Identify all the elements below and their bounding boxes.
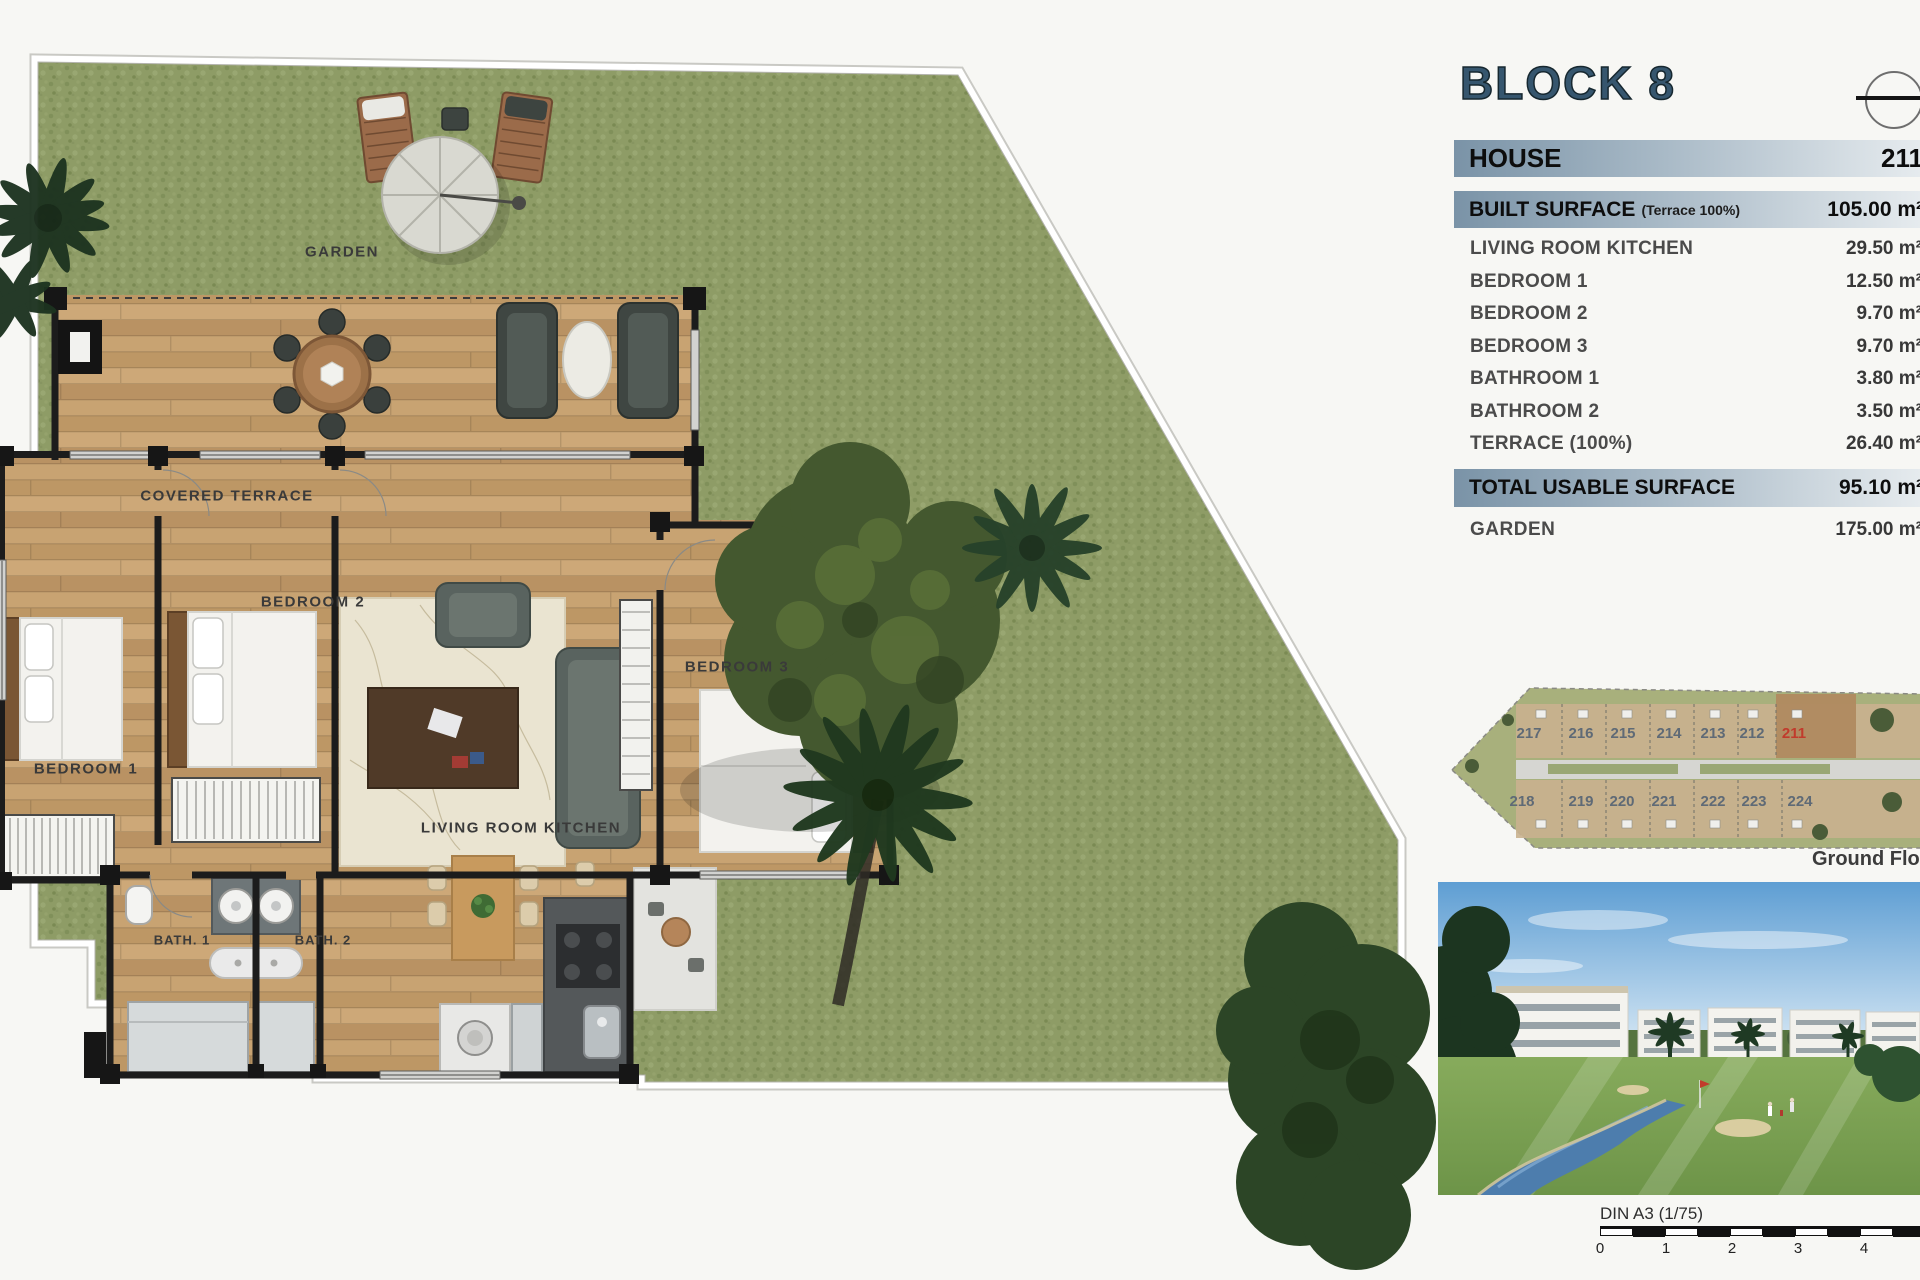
scale-tick: 3 — [1794, 1240, 1802, 1257]
ground-floor-caption: Ground Floor — [1812, 848, 1920, 871]
site-unit-215: 215 — [1610, 725, 1635, 742]
row-label: BEDROOM 3 — [1454, 336, 1588, 358]
scale-segment — [1633, 1229, 1665, 1237]
row-label: LIVING ROOM KITCHEN — [1454, 238, 1693, 260]
scale-tick: 1 — [1662, 1240, 1670, 1257]
built-surface-row: BUILT SURFACE (Terrace 100%) 105.00 m² — [1454, 191, 1920, 228]
compass-icon — [1865, 71, 1920, 129]
bedroom1-furniture — [0, 618, 122, 877]
table-row: LIVING ROOM KITCHEN 29.50 m² — [1454, 233, 1920, 266]
built-surface-value: 105.00 m² — [1827, 198, 1920, 222]
living-room-kitchen-label: LIVING ROOM KITCHEN — [421, 820, 621, 837]
table-row: BATHROOM 2 3.50 m² — [1454, 396, 1920, 429]
total-label: TOTAL USABLE SURFACE — [1454, 476, 1735, 500]
site-unit-221: 221 — [1651, 793, 1676, 810]
site-unit-223: 223 — [1741, 793, 1766, 810]
built-surface-note: (Terrace 100%) — [1641, 202, 1740, 218]
row-label: BEDROOM 2 — [1454, 303, 1588, 325]
site-unit-213: 213 — [1700, 725, 1725, 742]
garden-surface-row: GARDEN 175.00 m² — [1454, 513, 1920, 547]
scale-segment — [1795, 1229, 1828, 1236]
bedroom1-label: BEDROOM 1 — [34, 761, 138, 778]
site-unit-216: 216 — [1568, 725, 1593, 742]
scale-segment — [1893, 1229, 1920, 1237]
site-plan: 217 216 215 214 213 212 211 218 219 220 … — [1448, 680, 1920, 860]
table-row: BEDROOM 3 9.70 m² — [1454, 331, 1920, 364]
scale-tick: 0 — [1596, 1240, 1604, 1257]
entry-gate — [58, 320, 102, 374]
site-unit-218: 218 — [1509, 793, 1534, 810]
row-value: 12.50 m² — [1846, 271, 1920, 293]
site-unit-214: 214 — [1656, 725, 1682, 742]
row-label: BATHROOM 2 — [1454, 401, 1599, 423]
scale-segment — [1600, 1229, 1633, 1236]
bedroom2-furniture — [168, 612, 320, 842]
garden-surface-label: GARDEN — [1454, 519, 1555, 541]
scale-segment — [1763, 1229, 1795, 1237]
bedroom3-label: BEDROOM 3 — [685, 659, 789, 676]
surface-table: LIVING ROOM KITCHEN 29.50 m² BEDROOM 1 1… — [1454, 233, 1920, 461]
project-render-photo — [1438, 882, 1920, 1195]
scale-label: DIN A3 (1/75) — [1600, 1204, 1703, 1224]
bedroom2-label: BEDROOM 2 — [261, 594, 365, 611]
row-value: 9.70 m² — [1857, 336, 1920, 358]
scale-segment — [1860, 1229, 1893, 1236]
compass-needle-icon — [1856, 96, 1920, 100]
garden-label: GARDEN — [305, 244, 379, 261]
site-unit-224: 224 — [1787, 793, 1813, 810]
row-label: BEDROOM 1 — [1454, 271, 1588, 293]
site-unit-222: 222 — [1700, 793, 1725, 810]
row-label: TERRACE (100%) — [1454, 433, 1633, 455]
page-title: BLOCK 8 — [1460, 56, 1676, 110]
built-surface-label: BUILT SURFACE — [1454, 198, 1635, 222]
row-value: 9.70 m² — [1857, 303, 1920, 325]
site-unit-219: 219 — [1568, 793, 1593, 810]
page: GARDEN COVERED TERRACE BEDROOM 2 BEDROOM… — [0, 0, 1920, 1280]
scale-segment — [1730, 1229, 1763, 1236]
scale-tick: 4 — [1860, 1240, 1868, 1257]
site-unit-211-highlighted: 211 — [1782, 725, 1806, 742]
bath1-label: BATH. 1 — [154, 933, 211, 948]
bath2-label: BATH. 2 — [295, 933, 352, 948]
row-value: 3.80 m² — [1857, 368, 1920, 390]
row-label: BATHROOM 1 — [1454, 368, 1599, 390]
site-unit-212: 212 — [1739, 725, 1764, 742]
house-label: HOUSE — [1454, 143, 1561, 174]
table-row: TERRACE (100%) 26.40 m² — [1454, 428, 1920, 461]
side-patio — [634, 868, 716, 1010]
table-row: BATHROOM 1 3.80 m² — [1454, 363, 1920, 396]
row-value: 29.50 m² — [1846, 238, 1920, 260]
house-number: 211 — [1881, 143, 1920, 174]
house-header-row: HOUSE 211 — [1454, 140, 1920, 177]
total-value: 95.10 m² — [1839, 476, 1920, 500]
scale-segment — [1828, 1229, 1860, 1237]
scale-tick: 2 — [1728, 1240, 1736, 1257]
table-row: BEDROOM 1 12.50 m² — [1454, 266, 1920, 299]
scale-segment — [1665, 1229, 1698, 1236]
site-unit-217: 217 — [1516, 725, 1541, 742]
table-row: BEDROOM 2 9.70 m² — [1454, 298, 1920, 331]
row-value: 3.50 m² — [1857, 401, 1920, 423]
scale-segment — [1698, 1229, 1730, 1237]
garden-surface-value: 175.00 m² — [1835, 519, 1920, 541]
covered-terrace-label: COVERED TERRACE — [140, 488, 313, 505]
floor-plan-canvas — [0, 0, 1450, 1280]
scale-bar — [1600, 1226, 1920, 1239]
total-usable-surface-row: TOTAL USABLE SURFACE 95.10 m² — [1454, 469, 1920, 507]
site-unit-220: 220 — [1609, 793, 1634, 810]
row-value: 26.40 m² — [1846, 433, 1920, 455]
